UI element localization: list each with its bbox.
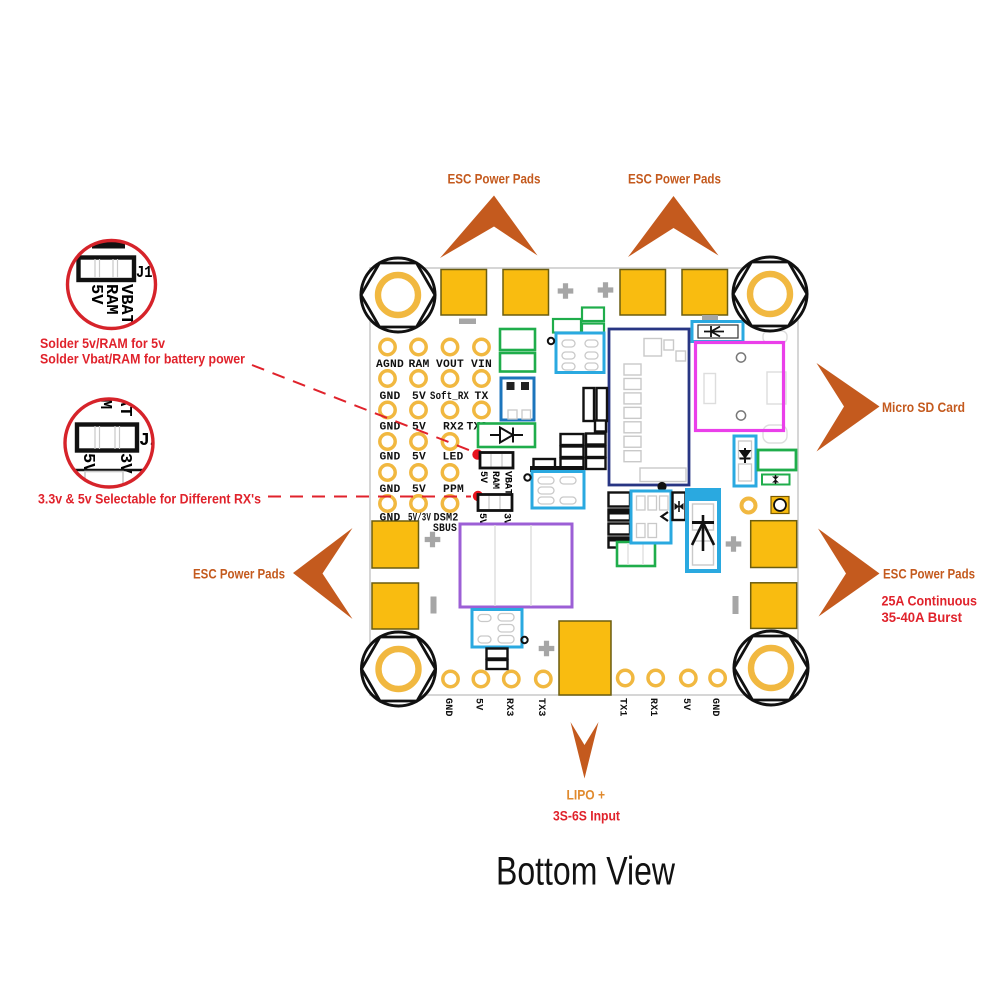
svg-text:Soft_RX: Soft_RX xyxy=(430,391,469,403)
svg-text:ESC Power Pads: ESC Power Pads xyxy=(883,566,975,582)
svg-text:GND: GND xyxy=(380,513,401,525)
svg-text:5V: 5V xyxy=(477,471,488,483)
svg-text:Micro SD Card: Micro SD Card xyxy=(882,399,965,415)
svg-text:VBAT: VBAT xyxy=(116,284,135,325)
svg-text:GND: GND xyxy=(380,391,401,403)
svg-text:Solder 5v/RAM for 5v: Solder 5v/RAM for 5v xyxy=(40,335,165,351)
svg-text:LIPO +: LIPO + xyxy=(567,787,606,803)
svg-text:LED: LED xyxy=(443,452,464,464)
svg-text:TX1: TX1 xyxy=(617,698,628,717)
svg-text:TX3: TX3 xyxy=(535,698,546,717)
svg-text:GND: GND xyxy=(380,484,401,496)
svg-text:RX2: RX2 xyxy=(443,422,464,434)
svg-text:VIN: VIN xyxy=(471,359,492,371)
svg-text:ESC Power Pads: ESC Power Pads xyxy=(448,171,541,187)
svg-text:25A Continuous: 25A Continuous xyxy=(882,592,978,608)
svg-text:SBUS: SBUS xyxy=(433,523,457,535)
svg-text:5V/3V: 5V/3V xyxy=(408,513,431,525)
svg-text:5V: 5V xyxy=(680,698,691,710)
svg-text:5V: 5V xyxy=(412,391,426,403)
svg-text:GND: GND xyxy=(380,452,401,464)
svg-text:Bottom View: Bottom View xyxy=(496,850,675,894)
svg-text:GND: GND xyxy=(709,698,720,717)
svg-text:RAM: RAM xyxy=(489,471,500,489)
svg-text:RAM: RAM xyxy=(409,359,430,371)
svg-text:ESC Power Pads: ESC Power Pads xyxy=(193,566,285,582)
svg-text:RX3: RX3 xyxy=(503,698,514,717)
svg-text:GND: GND xyxy=(442,698,453,717)
svg-text:3.3v & 5v Selectable for Diffe: 3.3v & 5v Selectable for Different RX's xyxy=(38,491,261,507)
svg-text:PPM: PPM xyxy=(443,484,464,496)
svg-text:5V: 5V xyxy=(412,484,426,496)
svg-text:5V: 5V xyxy=(412,452,426,464)
svg-text:VOUT: VOUT xyxy=(436,359,464,371)
svg-text:VBAT: VBAT xyxy=(502,471,513,495)
svg-text:TX: TX xyxy=(475,391,489,403)
svg-text:35-40A Burst: 35-40A Burst xyxy=(882,609,963,625)
svg-text:ESC Power Pads: ESC Power Pads xyxy=(628,171,721,187)
svg-text:Solder Vbat/RAM for battery po: Solder Vbat/RAM for battery power xyxy=(40,351,245,367)
svg-text:AGND: AGND xyxy=(376,359,404,371)
svg-text:RX1: RX1 xyxy=(647,698,658,717)
svg-text:GND: GND xyxy=(380,422,401,434)
svg-text:3S-6S Input: 3S-6S Input xyxy=(553,808,620,824)
svg-text:5V: 5V xyxy=(472,698,483,710)
